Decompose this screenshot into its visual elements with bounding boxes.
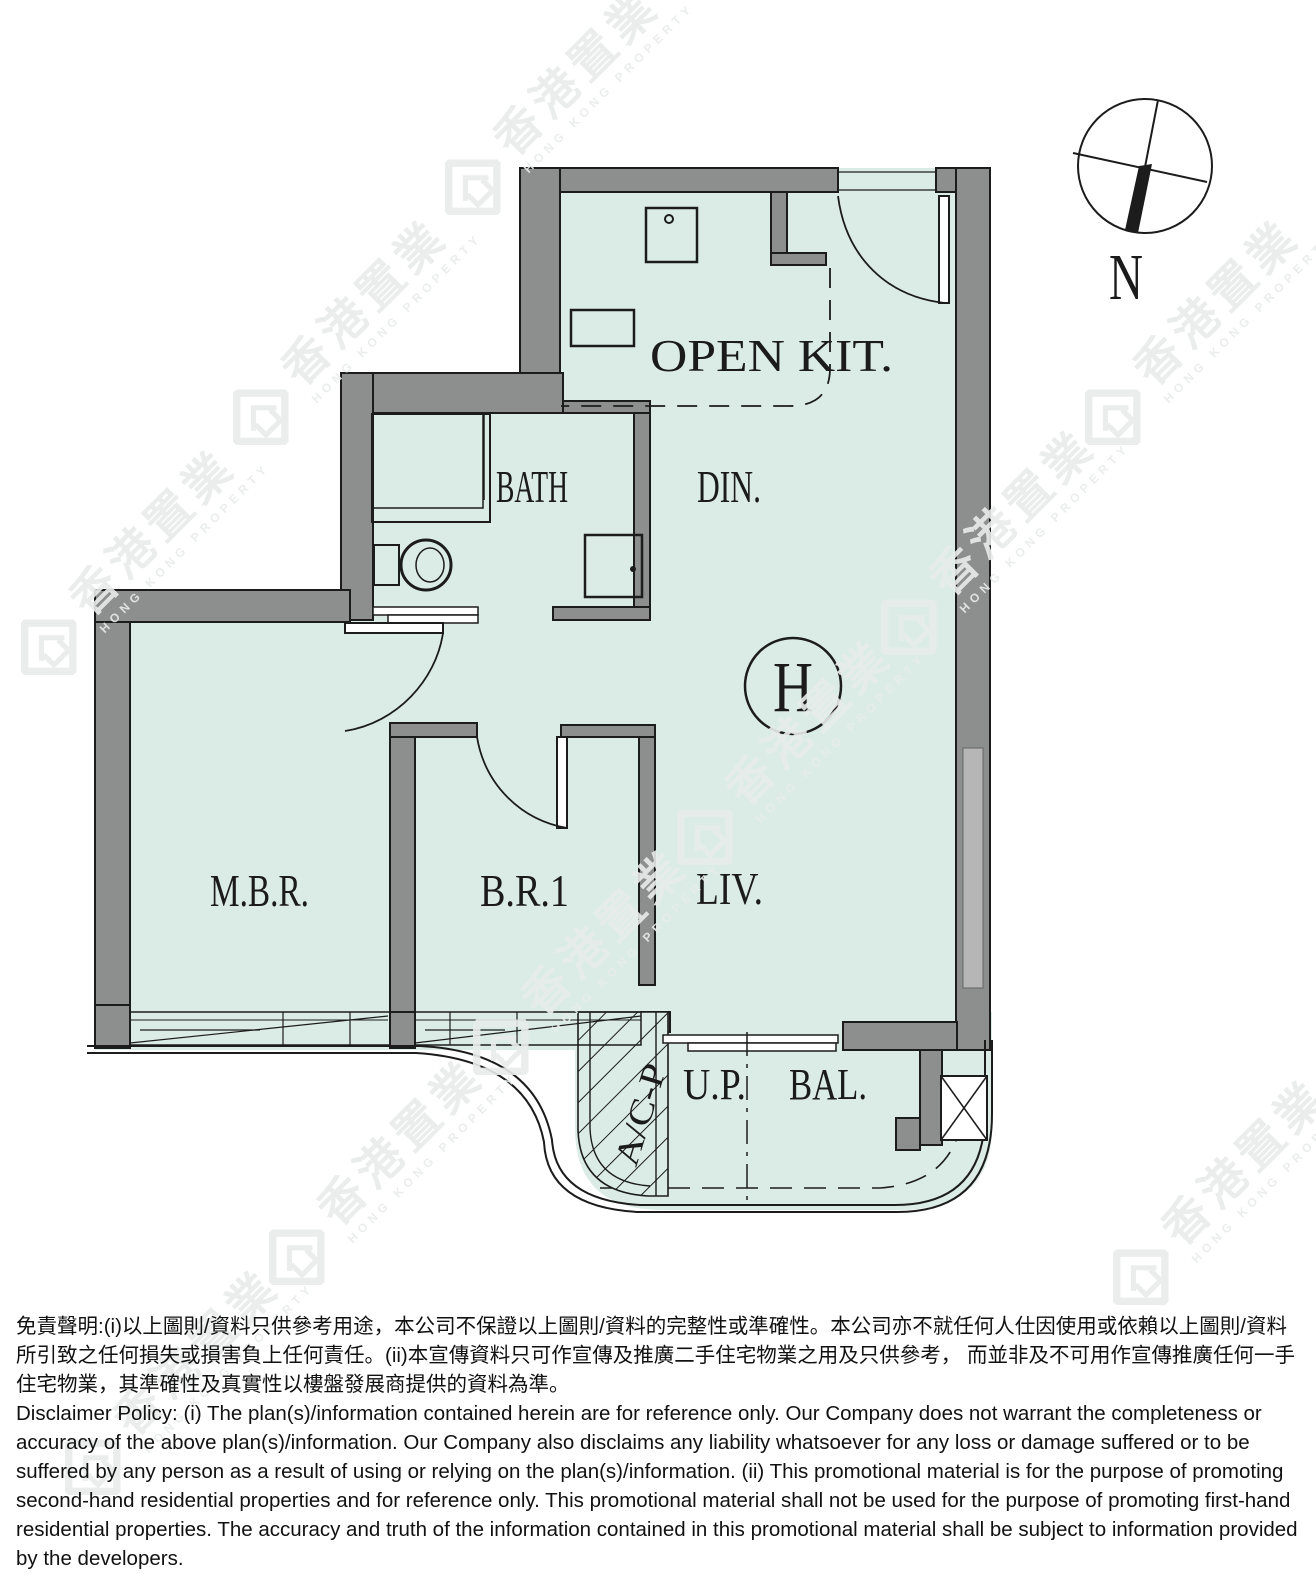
- room-label-living: LIV.: [696, 863, 763, 914]
- disclaimer-block: 免責聲明:(i)以上圖則/資料只供參考用途，本公司不保證以上圖則/資料的完整性或…: [16, 1312, 1304, 1573]
- bath-sliding-door: [373, 607, 478, 623]
- room-label-balcony: BAL.: [789, 1060, 867, 1109]
- room-label-open-kitchen: OPEN KIT.: [650, 330, 893, 381]
- room-label-dining: DIN.: [697, 461, 761, 512]
- room-label-utility-platform: U.P.: [683, 1060, 746, 1109]
- floor-plan-drawing: H N OPEN KIT. BATH DIN. M.B.R. B.R.1 LIV…: [0, 0, 1316, 1280]
- room-label-bedroom1: B.R.1: [480, 865, 569, 916]
- room-label-bath: BATH: [496, 461, 568, 512]
- compass-north-label: N: [1109, 241, 1143, 314]
- duct-box: [941, 1076, 987, 1140]
- right-wall-window: [963, 748, 983, 988]
- balcony-sliding-door: [663, 1035, 838, 1051]
- unit-marker-label: H: [773, 647, 813, 727]
- room-label-master-bedroom: M.B.R.: [210, 865, 309, 916]
- disclaimer-chinese: 免責聲明:(i)以上圖則/資料只供參考用途，本公司不保證以上圖則/資料的完整性或…: [16, 1312, 1304, 1399]
- compass-icon: [1073, 99, 1212, 233]
- floor-plan-page: H N OPEN KIT. BATH DIN. M.B.R. B.R.1 LIV…: [0, 0, 1316, 1574]
- disclaimer-english: Disclaimer Policy: (i) The plan(s)/infor…: [16, 1399, 1304, 1573]
